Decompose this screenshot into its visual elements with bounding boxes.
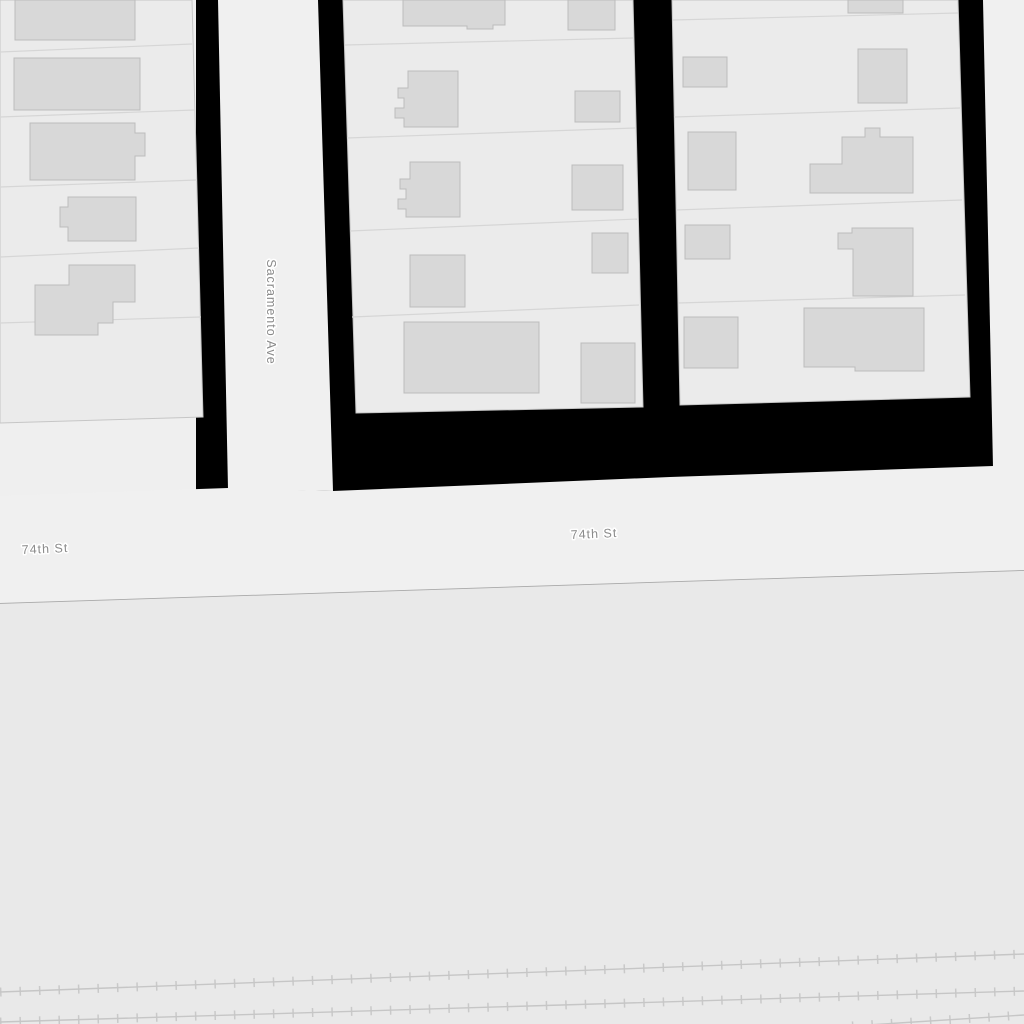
building-footprint <box>688 132 736 190</box>
building-footprint <box>404 322 539 393</box>
building-footprint <box>685 225 730 259</box>
open-area <box>0 570 1024 1024</box>
building-footprint <box>403 0 505 29</box>
building-footprint <box>804 308 924 371</box>
map-canvas[interactable]: Sacramento Ave 74th St 74th St <box>0 0 1024 1024</box>
building-footprint <box>581 343 635 403</box>
building-footprint <box>683 57 727 87</box>
building-footprint <box>14 58 140 110</box>
building-footprint <box>848 0 903 13</box>
building-footprint <box>568 0 615 30</box>
map-viewport[interactable]: Sacramento Ave 74th St 74th St <box>0 0 1024 1024</box>
street-label-sacramento-ave: Sacramento Ave <box>264 259 278 365</box>
building-footprint <box>15 0 135 40</box>
building-footprint <box>30 123 145 180</box>
building-footprint <box>592 233 628 273</box>
street-label-74th-st-left: 74th St <box>21 541 68 557</box>
building-footprint <box>684 317 738 368</box>
building-footprint <box>575 91 620 122</box>
building-footprint <box>572 165 623 210</box>
building-footprint <box>858 49 907 103</box>
street-label-74th-st-center: 74th St <box>570 526 617 542</box>
building-footprint <box>410 255 465 307</box>
road-sacramento-ave <box>218 0 333 491</box>
building-footprint <box>60 197 136 241</box>
